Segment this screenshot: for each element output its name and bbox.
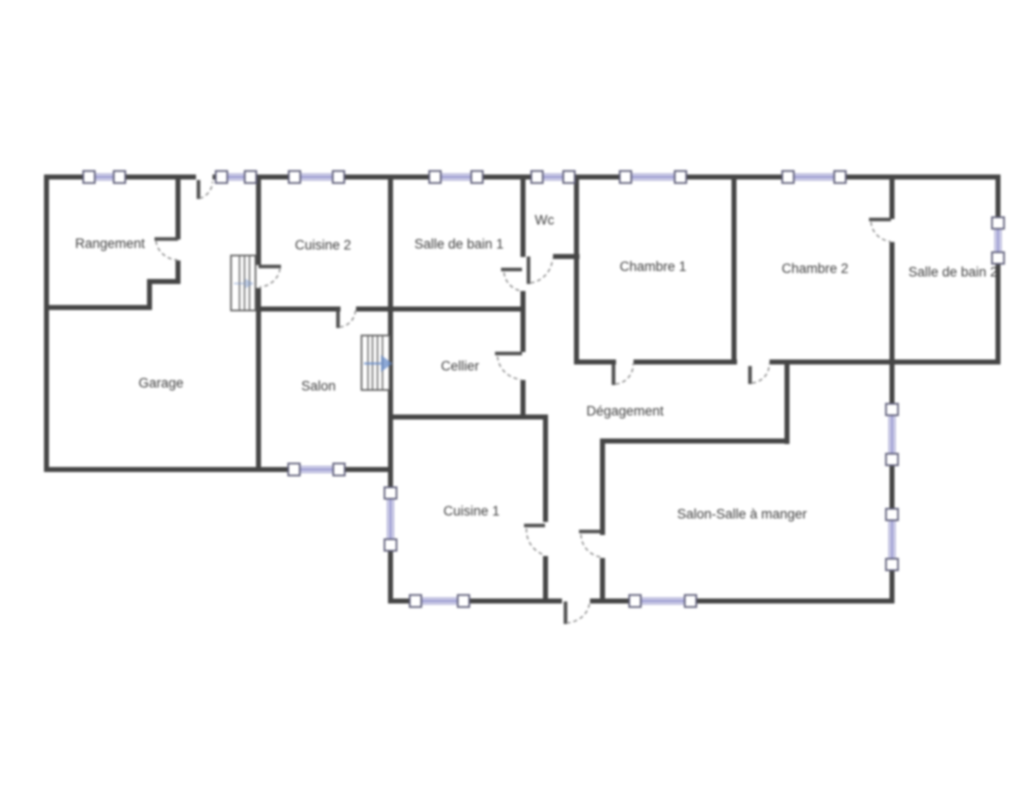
svg-text:Cuisine 2: Cuisine 2 [295,238,351,253]
svg-text:Salon: Salon [301,379,336,394]
svg-text:Chambre 2: Chambre 2 [782,261,849,276]
svg-text:Garage: Garage [138,376,183,391]
svg-text:Salle de bain 1: Salle de bain 1 [414,237,503,252]
svg-text:Chambre 1: Chambre 1 [620,259,687,274]
svg-text:Rangement: Rangement [75,236,145,251]
svg-text:Wc: Wc [535,213,555,228]
svg-text:Cellier: Cellier [441,359,480,374]
svg-text:Dégagement: Dégagement [586,404,664,419]
svg-text:Cuisine 1: Cuisine 1 [443,504,499,519]
svg-text:Salle de bain 2: Salle de bain 2 [908,265,997,280]
svg-text:Salon-Salle à manger: Salon-Salle à manger [677,507,807,522]
